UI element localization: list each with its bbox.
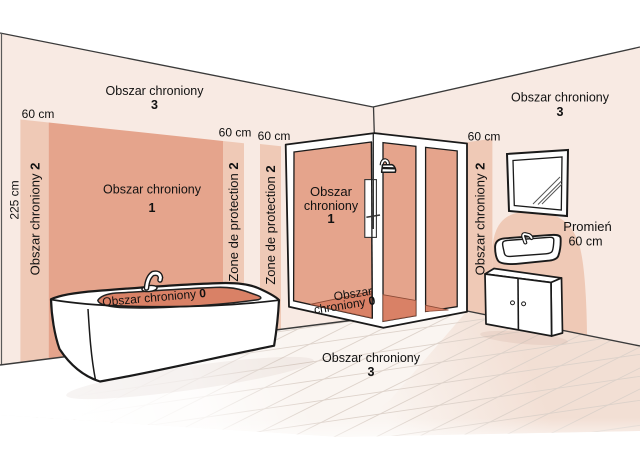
svg-text:60 cm: 60 cm xyxy=(468,129,501,143)
svg-text:3: 3 xyxy=(368,365,375,379)
svg-text:Obszar chroniony: Obszar chroniony xyxy=(511,91,610,105)
svg-text:Obszar chroniony 2: Obszar chroniony 2 xyxy=(28,163,43,276)
svg-text:Obszar chroniony: Obszar chroniony xyxy=(106,84,205,98)
svg-text:Obszar chroniony: Obszar chroniony xyxy=(322,351,421,365)
svg-text:3: 3 xyxy=(151,98,158,112)
svg-text:Zone de protection 2: Zone de protection 2 xyxy=(226,162,241,281)
svg-text:Obszar chroniony 2: Obszar chroniony 2 xyxy=(473,163,488,276)
svg-text:Promień: Promień xyxy=(563,219,611,234)
svg-text:1: 1 xyxy=(327,211,334,226)
svg-text:60 cm: 60 cm xyxy=(22,107,55,121)
svg-text:60 cm: 60 cm xyxy=(219,126,252,140)
svg-text:Obszar: Obszar xyxy=(310,184,353,199)
svg-text:1: 1 xyxy=(149,201,156,215)
svg-text:225 cm: 225 cm xyxy=(8,180,22,219)
svg-text:60 cm: 60 cm xyxy=(568,235,602,249)
svg-text:3: 3 xyxy=(557,105,564,119)
svg-text:60 cm: 60 cm xyxy=(258,129,291,143)
svg-text:Zone de protection 2: Zone de protection 2 xyxy=(263,165,278,284)
svg-text:Obszar chroniony: Obszar chroniony xyxy=(103,183,202,197)
